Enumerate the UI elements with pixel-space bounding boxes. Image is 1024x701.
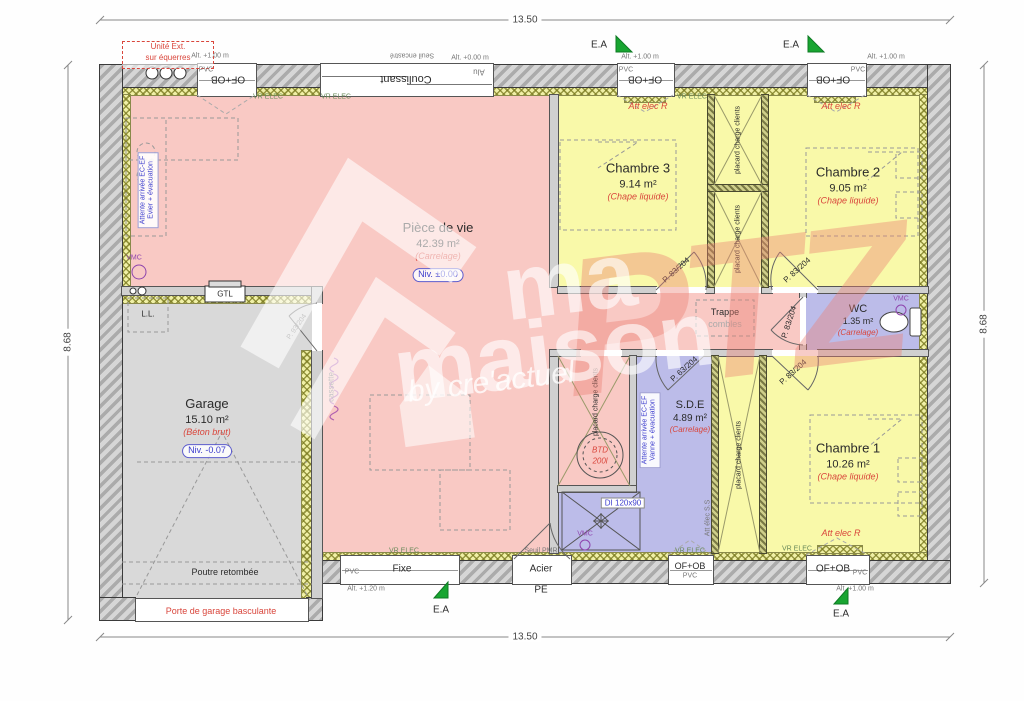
- btd-line2: 200l: [592, 457, 607, 466]
- vr-elec-2: VR ELEC: [321, 94, 351, 101]
- room-level: Niv. ±0.00: [412, 268, 464, 282]
- douche-label: DI 120x90: [601, 498, 645, 509]
- wall-cellier-south: [558, 486, 636, 492]
- room-floor: (Chape liquide): [816, 196, 880, 208]
- ea-label-top1: E.A: [591, 40, 607, 51]
- cassette-label: cassette: [327, 372, 336, 402]
- room-level: Niv. -0.07: [182, 444, 232, 458]
- att-elec-r-ch1: Att elec R: [821, 528, 860, 538]
- label-garage: Garage 15.10 m² (Béton brut) Niv. -0.07: [182, 396, 232, 460]
- alt-label-ch1-win: Alt. +1.00 m: [836, 586, 874, 593]
- alt-label-tw1: Alt. +1.00 m: [191, 53, 229, 60]
- wall-living-east-bottom: [550, 356, 558, 553]
- wall-cellier-east: [630, 356, 636, 486]
- ea-label-bottom2: E.A: [833, 609, 849, 620]
- wall-ch3-south-2: [706, 287, 714, 293]
- wall-hall-south-1: [550, 350, 580, 356]
- room-area: 9.14 m²: [606, 177, 670, 191]
- wall-exterior-right: [928, 65, 950, 583]
- wall-ch2-south-2: [818, 287, 928, 293]
- dim-right: 8.68: [979, 310, 990, 337]
- attente-vanne-line1: Attente arrivée EC-EF: [642, 396, 650, 464]
- window-label-tw4: OF+OB: [816, 74, 850, 85]
- vr-elec-3: VR ELEC: [677, 94, 707, 101]
- attente-evier-note: Attente arrivée EC-EF Evier + évacuation: [138, 152, 159, 228]
- attente-evier-line1: Attente arrivée EC-EF: [140, 156, 148, 224]
- alt-label-tw3: Alt. +1.00 m: [621, 54, 659, 61]
- material-label-fixe: PVC: [345, 569, 359, 576]
- label-chambre3: Chambre 3 9.14 m² (Chape liquide): [606, 161, 670, 204]
- att-elec-r-ch2: Att elec R: [821, 101, 860, 111]
- alt-label-sliding: Alt. +0.00 m: [451, 55, 489, 62]
- wall-garage-bottom-left: [100, 598, 135, 620]
- seuil-pmr-label: Seuil PMR: [524, 548, 557, 555]
- alt-label-fixe: Alt. +1.20 m: [347, 586, 385, 593]
- vmc-sde-label: VMC: [577, 531, 593, 538]
- room-name: Pièce de vie: [403, 220, 474, 237]
- vr-elec-1: VR ELEC: [253, 94, 283, 101]
- garage-door-label: Porte de garage basculante: [166, 606, 277, 616]
- wall-hall-south-2: [622, 350, 656, 356]
- trappe-line2: combles: [708, 319, 742, 329]
- room-area: 4.89 m²: [670, 412, 710, 425]
- door-gap-ch1: [772, 350, 818, 356]
- material-label-sde-win: PVC: [683, 573, 697, 580]
- wall-closet-bottom-west: [712, 356, 718, 553]
- room-floor: (Chape liquide): [816, 472, 880, 484]
- trappe-line1: Trappe: [711, 307, 739, 317]
- insulation-right: [920, 95, 928, 553]
- gtl-label: GTL: [217, 290, 233, 299]
- placard-label-cellier: placard charge clients: [593, 368, 600, 436]
- label-wc: WC 1.35 m² (Carrelage): [838, 302, 878, 338]
- dim-bottom: 13.50: [508, 632, 541, 643]
- material-label-tw3: PVC: [619, 67, 633, 74]
- floor-plan: 13.50 13.50 8.68 8.68 Pièce de vie 42.39…: [0, 0, 1024, 701]
- room-hallway: [550, 293, 800, 350]
- vmc-wc-label: VMC: [893, 296, 909, 303]
- window-label-tw3: OF+OB: [628, 74, 662, 85]
- attente-vanne-note: Attente arrivée EC-EF Vanne + évacuation: [640, 392, 661, 468]
- ea-label-top2: E.A: [783, 40, 799, 51]
- door-gap-wc: [800, 297, 806, 345]
- attente-vanne-line2: Vanne + évacuation: [650, 396, 658, 464]
- room-area: 1.35 m²: [838, 316, 878, 328]
- entry-door-label-1: Acier: [530, 564, 553, 575]
- room-floor: (Carrelage): [403, 251, 474, 263]
- seuil-encastre-label: Seuil encastré: [390, 52, 434, 59]
- room-floor: (Carrelage): [670, 425, 710, 435]
- room-area: 10.26 m²: [816, 457, 880, 471]
- attente-evier-line2: Evier + évacuation: [148, 156, 156, 224]
- entry-door-label-2: PE: [534, 585, 547, 596]
- poutre-label: Poutre retombée: [191, 567, 258, 577]
- vr-elec-4: VR ELEC: [389, 548, 419, 555]
- window-label-tw1: OF+OB: [211, 74, 245, 85]
- alt-label-tw4: Alt. +1.00 m: [867, 54, 905, 61]
- room-area: 42.39 m²: [403, 237, 474, 251]
- wall-closet-top-east: [762, 95, 768, 287]
- wall-ch2-south-1: [762, 287, 772, 293]
- door-gap-ch2: [772, 287, 818, 293]
- btd-line1: BTD: [592, 446, 608, 455]
- vr-elec-5: VR ELEC: [675, 548, 705, 555]
- window-label-sde: OF+OB: [675, 561, 706, 571]
- window-label-fixe: Fixe: [393, 564, 412, 575]
- placard-label-bottom: placard charge clients: [736, 421, 743, 489]
- material-label-sliding: Alu: [473, 68, 485, 77]
- att-elec-r-ch3: Att elec R: [628, 101, 667, 111]
- label-sde: S.D.E 4.89 m² (Carrelage): [670, 398, 710, 436]
- placard-label-top-b: placard charge clients: [735, 205, 742, 273]
- window-label-ch1: OF+OB: [816, 564, 850, 575]
- door-gap-garage: [312, 303, 322, 351]
- wall-exterior-left: [100, 65, 122, 620]
- sill-ch1: [818, 546, 862, 553]
- room-floor: (Béton brut): [182, 427, 232, 439]
- room-floor: (Chape liquide): [606, 192, 670, 204]
- wall-garage-east-bottom: [312, 351, 322, 598]
- wall-hall-south-4: [818, 350, 928, 356]
- door-gap-cellier: [580, 350, 622, 356]
- vr-elec-6: VR ELEC: [782, 546, 812, 553]
- wall-garage-bottom-right: [307, 598, 322, 620]
- dim-left: 8.68: [63, 328, 74, 355]
- room-area: 9.05 m²: [816, 181, 880, 195]
- wall-ch3-south-1: [558, 287, 656, 293]
- label-chambre2: Chambre 2 9.05 m² (Chape liquide): [816, 165, 880, 208]
- door-gap-ch3: [656, 287, 706, 293]
- placard-label-top-a: placard charge clients: [735, 106, 742, 174]
- wall-closet-bottom-east: [760, 356, 766, 553]
- material-label-tw4: PVC: [851, 67, 865, 74]
- wall-closet-top-west: [708, 95, 714, 287]
- door-gap-sde: [656, 350, 704, 356]
- exterior-unit-line1: Unité Ext.: [123, 42, 213, 53]
- wall-living-east-top: [550, 95, 558, 287]
- label-chambre1: Chambre 1 10.26 m² (Chape liquide): [816, 441, 880, 484]
- material-label-ch1-win: PVC: [853, 570, 867, 577]
- wall-closet-top-divider: [708, 185, 768, 191]
- wall-garage-east-top: [312, 287, 322, 303]
- material-label-tw1: PVC: [199, 67, 213, 74]
- room-floor: (Carrelage): [838, 328, 878, 338]
- att-elec-ss-label: Att élec S.S: [705, 500, 712, 537]
- room-name: Chambre 1: [816, 441, 880, 458]
- room-name: Chambre 2: [816, 165, 880, 182]
- ea-label-bottom1: E.A: [433, 605, 449, 616]
- insulation-garage-right: [302, 351, 312, 598]
- room-area: 15.10 m²: [182, 413, 232, 427]
- label-living: Pièce de vie 42.39 m² (Carrelage) Niv. ±…: [403, 220, 474, 284]
- ll-label: L.L.: [141, 310, 154, 319]
- room-name: S.D.E: [670, 398, 710, 412]
- room-name: WC: [838, 302, 878, 316]
- sliding-label: Coulissant: [380, 73, 431, 85]
- room-name: Chambre 3: [606, 161, 670, 178]
- vmc-living-label: VMC: [126, 255, 142, 262]
- dim-top: 13.50: [508, 15, 541, 26]
- room-name: Garage: [182, 396, 232, 413]
